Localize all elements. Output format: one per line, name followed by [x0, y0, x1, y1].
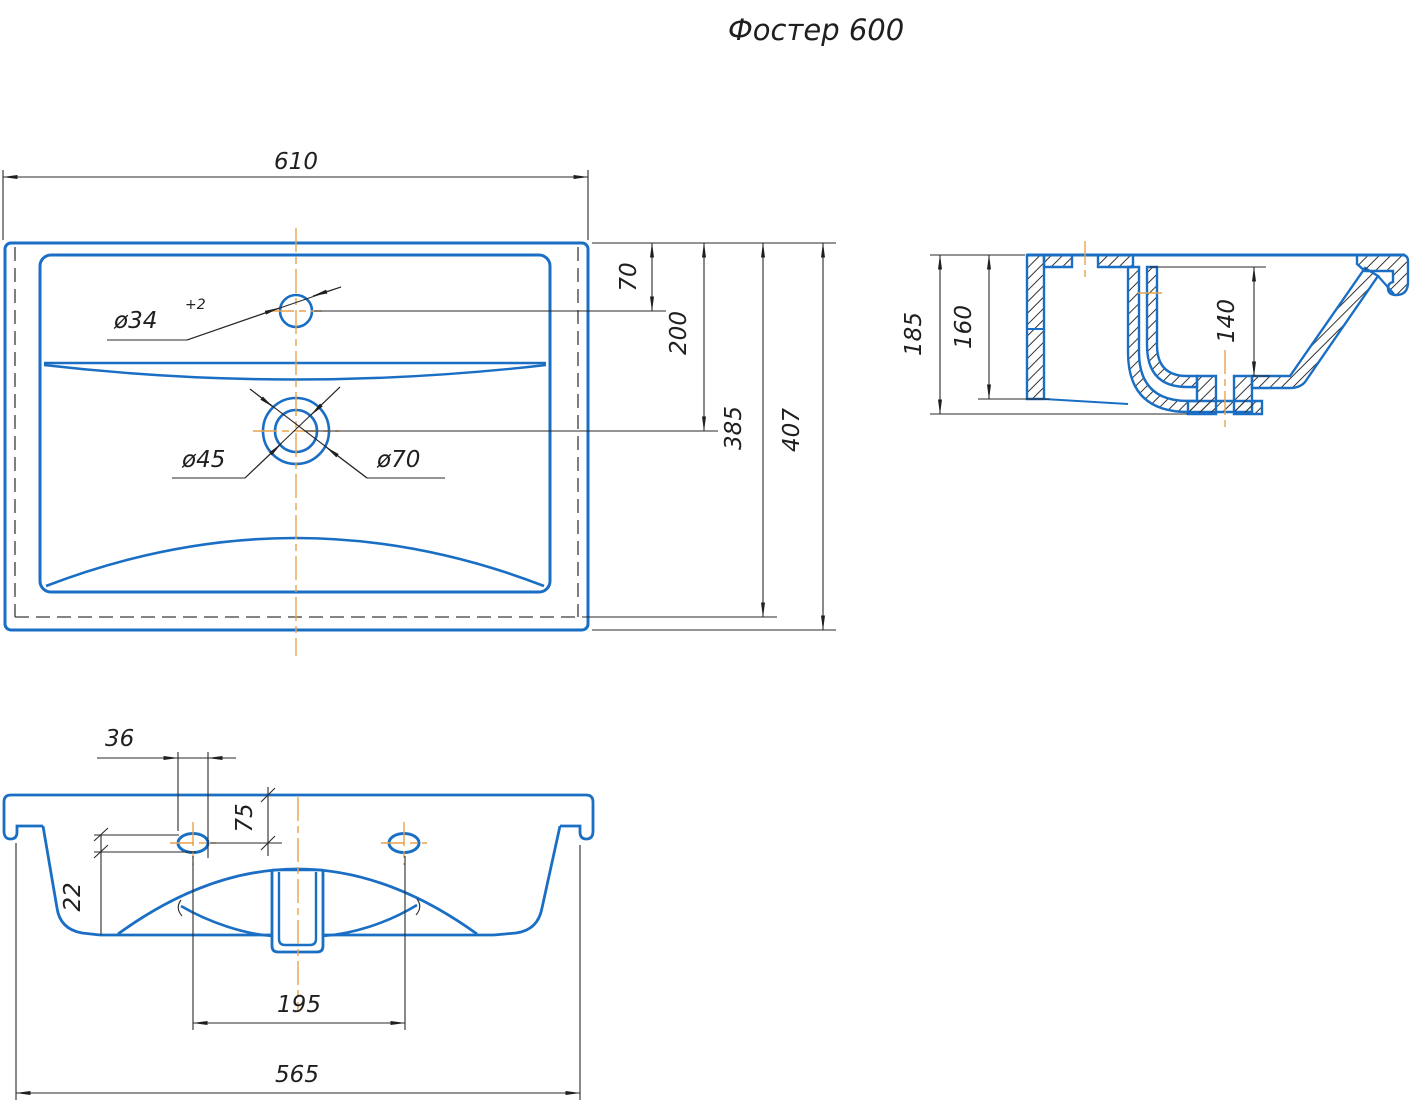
- dim-basin-depth-140: 140: [1214, 299, 1240, 343]
- label-dia34-tolerance: +2: [185, 297, 206, 313]
- label-dia45: ø45: [181, 447, 225, 473]
- dim-height-160: 160: [951, 305, 977, 349]
- dim-hole-depth-75: 75: [232, 803, 258, 832]
- dim-hole-width-36: 36: [105, 726, 134, 752]
- tangent-tick-left: [178, 900, 182, 916]
- bowl-front-curve: [46, 538, 544, 586]
- shelf-curve: [44, 365, 546, 380]
- dim-faucet-offset-70: 70: [616, 262, 642, 291]
- dim-depth-385: 385: [721, 406, 747, 450]
- rim-plate-right: [1098, 255, 1133, 267]
- dim-hole-height-22: 22: [60, 882, 86, 911]
- label-dia70: ø70: [376, 447, 420, 473]
- section-underside-edge: [1044, 399, 1128, 404]
- rim-plate-left: [1044, 255, 1072, 267]
- drain-inner-callout: ø45: [172, 387, 340, 478]
- label-dia34: ø34: [113, 308, 157, 334]
- basin-back-wall-section: [1147, 267, 1197, 387]
- drawing-title: Фостер 600: [728, 13, 904, 47]
- technical-drawing: Фостер 600 61: [0, 0, 1417, 1106]
- dim-hole-spacing-195: 195: [277, 992, 321, 1018]
- back-wall-section: [1027, 255, 1044, 399]
- left-wall: [43, 826, 100, 935]
- dim-depth-407: 407: [779, 408, 805, 452]
- top-view-dimensions: 610 70 200 385 407 ø34 +2: [3, 149, 836, 630]
- dim-drain-offset-200: 200: [666, 311, 692, 355]
- top-view: 610 70 200 385 407 ø34 +2: [3, 149, 836, 656]
- bottom-view: 36 75 22 195 565: [4, 726, 593, 1100]
- bowl-silhouette-left: [181, 906, 272, 936]
- bowl-silhouette-right: [323, 905, 417, 936]
- basin-floor-front-wall: [1252, 268, 1378, 388]
- dim-width-610: 610: [274, 149, 318, 175]
- right-wall: [494, 826, 560, 935]
- drawing-sheet: Фостер 600 61: [0, 0, 1417, 1106]
- tangent-tick-right: [416, 899, 420, 915]
- faucet-hole-callout: ø34 +2: [107, 287, 341, 340]
- section-view: 185 160 140: [901, 241, 1408, 432]
- dim-height-185: 185: [901, 312, 927, 356]
- dim-body-width-565: 565: [275, 1062, 319, 1088]
